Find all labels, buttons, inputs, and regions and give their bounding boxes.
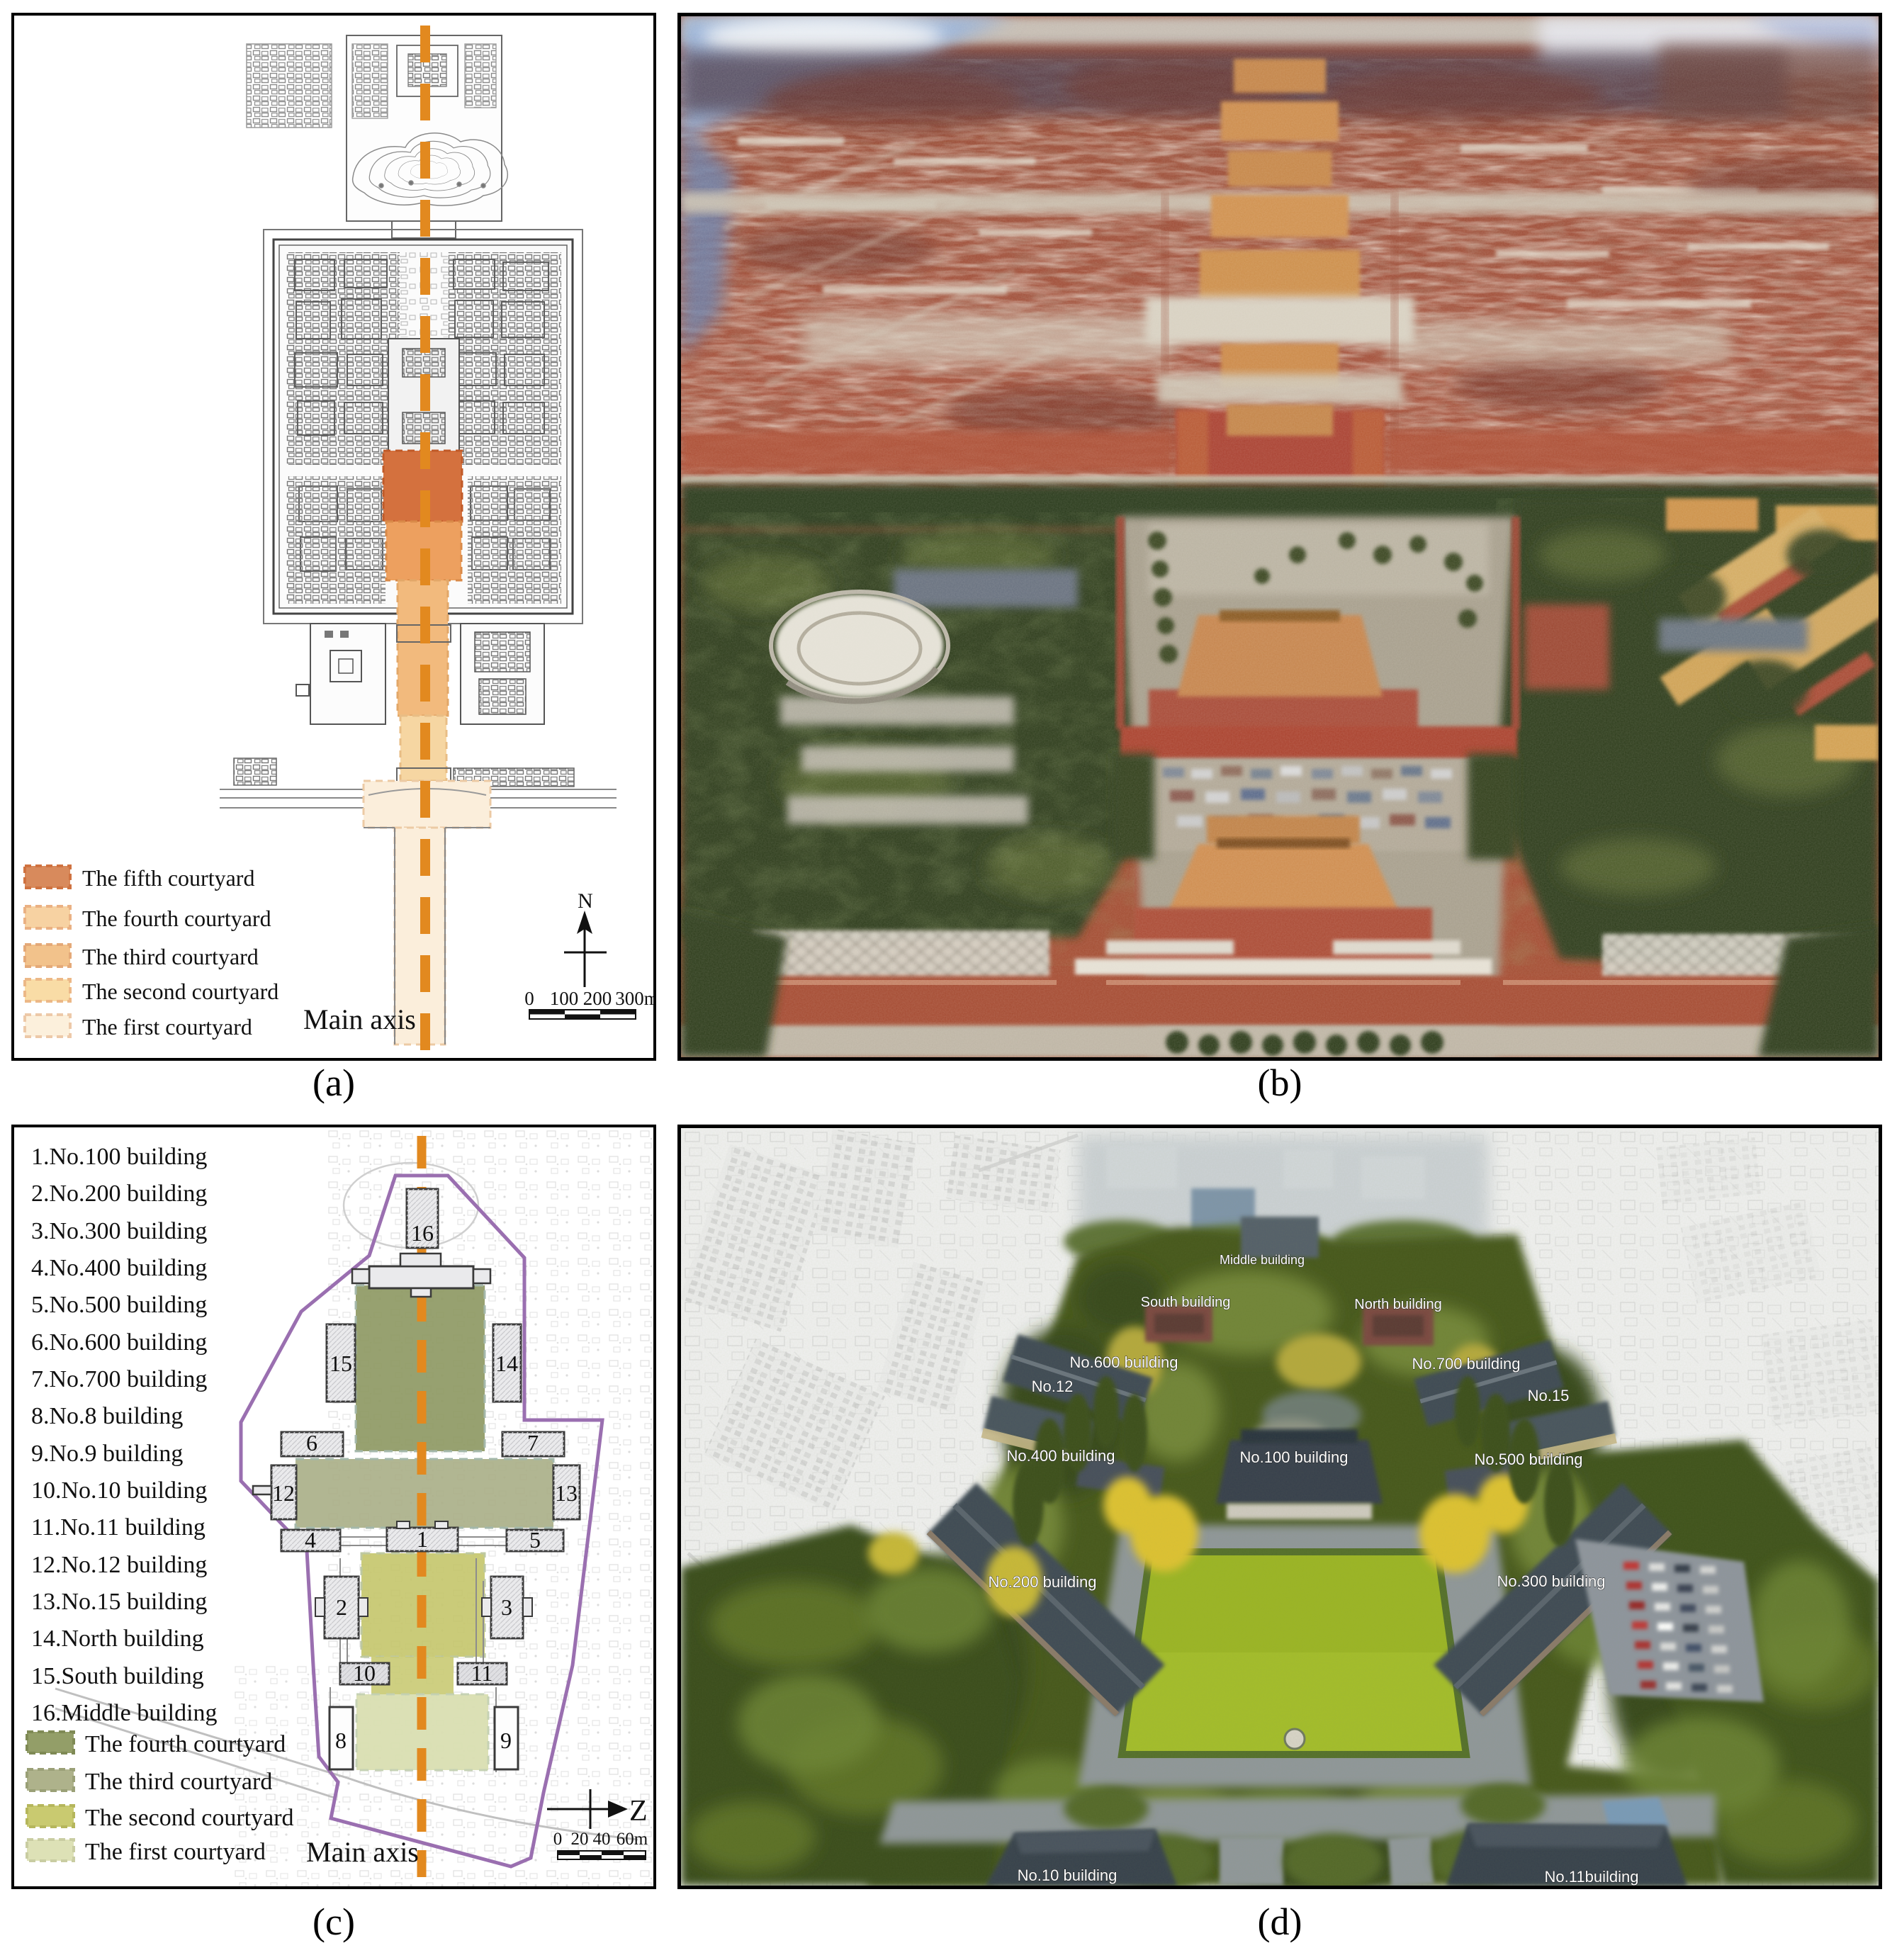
- svg-text:7: 7: [527, 1430, 539, 1455]
- svg-text:14: 14: [495, 1351, 518, 1376]
- svg-text:16: 16: [411, 1220, 434, 1246]
- svg-text:5: 5: [529, 1527, 541, 1553]
- svg-text:Z: Z: [629, 1795, 648, 1827]
- svg-text:9.No.9 building: 9.No.9 building: [31, 1441, 183, 1467]
- svg-text:Middle building: Middle building: [1220, 1253, 1305, 1267]
- svg-text:3.No.300 building: 3.No.300 building: [31, 1218, 207, 1244]
- svg-text:The first courtyard: The first courtyard: [82, 1014, 252, 1040]
- svg-text:4.No.400 building: 4.No.400 building: [31, 1255, 207, 1281]
- svg-text:5.No.500 building: 5.No.500 building: [31, 1292, 207, 1318]
- svg-text:South building: South building: [1141, 1295, 1231, 1310]
- svg-text:6.No.600 building: 6.No.600 building: [31, 1329, 207, 1356]
- svg-text:8: 8: [335, 1728, 347, 1753]
- svg-text:200: 200: [583, 988, 612, 1009]
- svg-text:1: 1: [417, 1526, 428, 1552]
- svg-text:No.100 building: No.100 building: [1240, 1448, 1349, 1466]
- svg-text:2.No.200 building: 2.No.200 building: [31, 1181, 207, 1207]
- svg-text:The third courtyard: The third courtyard: [85, 1769, 272, 1795]
- svg-text:The fourth courtyard: The fourth courtyard: [85, 1731, 286, 1757]
- svg-text:0: 0: [524, 988, 534, 1009]
- svg-text:No.11building: No.11building: [1545, 1868, 1639, 1886]
- svg-text:The first courtyard: The first courtyard: [85, 1839, 266, 1865]
- svg-text:2: 2: [336, 1594, 347, 1620]
- svg-text:13: 13: [555, 1480, 578, 1506]
- svg-text:No.200 building: No.200 building: [989, 1573, 1097, 1591]
- svg-text:The third courtyard: The third courtyard: [82, 944, 259, 969]
- svg-text:The fourth courtyard: The fourth courtyard: [82, 906, 271, 931]
- svg-text:12: 12: [272, 1480, 295, 1506]
- svg-text:N: N: [578, 889, 593, 913]
- svg-text:No.400 building: No.400 building: [1007, 1447, 1115, 1465]
- svg-text:16.Middle building: 16.Middle building: [31, 1700, 218, 1726]
- svg-text:No.10 building: No.10 building: [1018, 1866, 1118, 1884]
- svg-text:0: 0: [553, 1830, 563, 1849]
- svg-text:14.North building: 14.North building: [31, 1626, 204, 1652]
- svg-text:7.No.700 building: 7.No.700 building: [31, 1366, 207, 1392]
- svg-text:4: 4: [305, 1527, 316, 1553]
- svg-text:10.No.10 building: 10.No.10 building: [31, 1477, 207, 1504]
- svg-text:40: 40: [593, 1830, 611, 1849]
- svg-text:The fifth courtyard: The fifth courtyard: [82, 865, 254, 891]
- svg-text:Main axis: Main axis: [306, 1836, 419, 1868]
- svg-text:Main axis: Main axis: [303, 1003, 416, 1035]
- svg-text:13.No.15 building: 13.No.15 building: [31, 1589, 207, 1615]
- svg-text:300m: 300m: [615, 988, 653, 1009]
- svg-text:15.South building: 15.South building: [31, 1663, 204, 1689]
- svg-text:No.600 building: No.600 building: [1070, 1353, 1178, 1371]
- svg-text:No.300 building: No.300 building: [1497, 1572, 1606, 1590]
- svg-text:The second courtyard: The second courtyard: [82, 979, 278, 1004]
- svg-text:No.15: No.15: [1528, 1387, 1570, 1404]
- svg-text:1.No.100 building: 1.No.100 building: [31, 1144, 207, 1170]
- svg-text:No.12: No.12: [1032, 1378, 1074, 1395]
- svg-text:No.700 building: No.700 building: [1412, 1355, 1521, 1373]
- svg-text:11: 11: [471, 1660, 493, 1686]
- svg-text:6: 6: [306, 1430, 317, 1455]
- svg-text:9: 9: [500, 1728, 512, 1753]
- svg-text:100: 100: [550, 988, 579, 1009]
- svg-text:3: 3: [501, 1594, 512, 1620]
- svg-text:20: 20: [571, 1830, 589, 1849]
- svg-text:12.No.12 building: 12.No.12 building: [31, 1552, 207, 1578]
- svg-text:15: 15: [330, 1351, 352, 1376]
- svg-text:60m: 60m: [617, 1830, 648, 1849]
- svg-text:The second courtyard: The second courtyard: [85, 1805, 294, 1831]
- svg-text:North building: North building: [1354, 1297, 1441, 1312]
- svg-text:No.500 building: No.500 building: [1475, 1451, 1583, 1468]
- svg-text:10: 10: [353, 1660, 376, 1686]
- svg-text:11.No.11 building: 11.No.11 building: [31, 1514, 206, 1541]
- svg-text:8.No.8 building: 8.No.8 building: [31, 1403, 183, 1429]
